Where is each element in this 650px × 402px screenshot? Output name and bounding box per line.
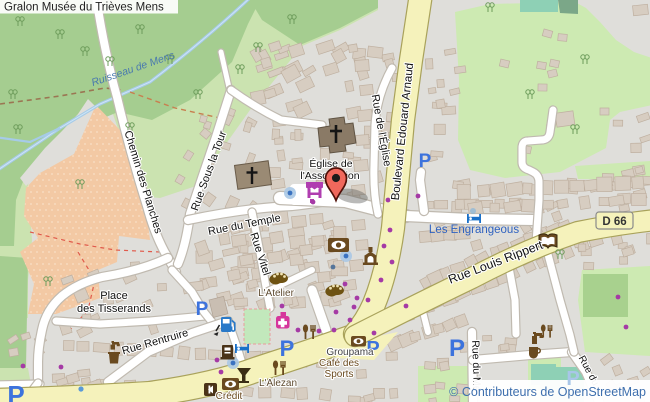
svg-text:P: P — [280, 336, 295, 361]
svg-text:P: P — [7, 380, 24, 402]
svg-text:© Contributeurs de OpenStreetM: © Contributeurs de OpenStreetMap — [449, 385, 646, 399]
svg-text:P: P — [419, 151, 432, 172]
svg-text:Sports: Sports — [325, 369, 354, 380]
svg-text:Les Engrangeous: Les Engrangeous — [429, 224, 519, 236]
svg-text:Gralon Musée du Trièves Mens: Gralon Musée du Trièves Mens — [4, 2, 164, 14]
svg-text:P: P — [449, 335, 465, 362]
svg-text:P: P — [196, 299, 209, 320]
svg-text:L'Alezan: L'Alezan — [259, 378, 297, 389]
svg-text:Café des: Café des — [319, 358, 359, 369]
svg-text:Crédit: Crédit — [216, 391, 243, 402]
svg-text:L'Atelier: L'Atelier — [258, 288, 294, 299]
svg-text:Église de: Église de — [309, 157, 352, 170]
svg-text:Place: Place — [100, 290, 128, 302]
svg-text:P: P — [566, 368, 579, 390]
svg-text:des Tisserands: des Tisserands — [77, 303, 151, 315]
svg-text:D 66: D 66 — [602, 216, 626, 228]
svg-text:Groupama: Groupama — [326, 347, 374, 358]
